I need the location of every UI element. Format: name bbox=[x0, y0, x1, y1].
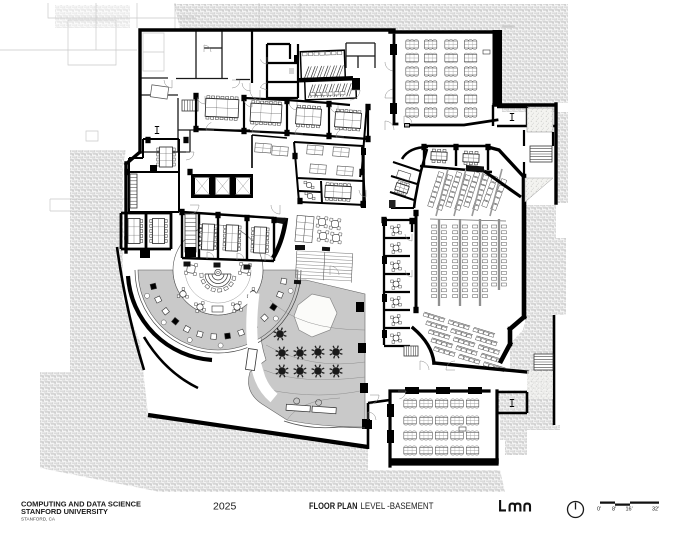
svg-text:16': 16' bbox=[626, 507, 633, 513]
svg-text:2025: 2025 bbox=[213, 501, 237, 513]
svg-text:32': 32' bbox=[652, 507, 659, 513]
svg-text:STANFORD UNIVERSITY: STANFORD UNIVERSITY bbox=[21, 509, 108, 516]
svg-text:STANFORD, CA: STANFORD, CA bbox=[21, 517, 55, 522]
svg-text:8': 8' bbox=[612, 507, 616, 513]
svg-text:0': 0' bbox=[597, 507, 601, 513]
svg-text:COMPUTING AND DATA SCIENCE: COMPUTING AND DATA SCIENCE bbox=[21, 502, 141, 509]
svg-text:LEVEL -BASEMENT: LEVEL -BASEMENT bbox=[361, 501, 434, 511]
svg-text:FLOOR PLAN: FLOOR PLAN bbox=[309, 501, 358, 511]
